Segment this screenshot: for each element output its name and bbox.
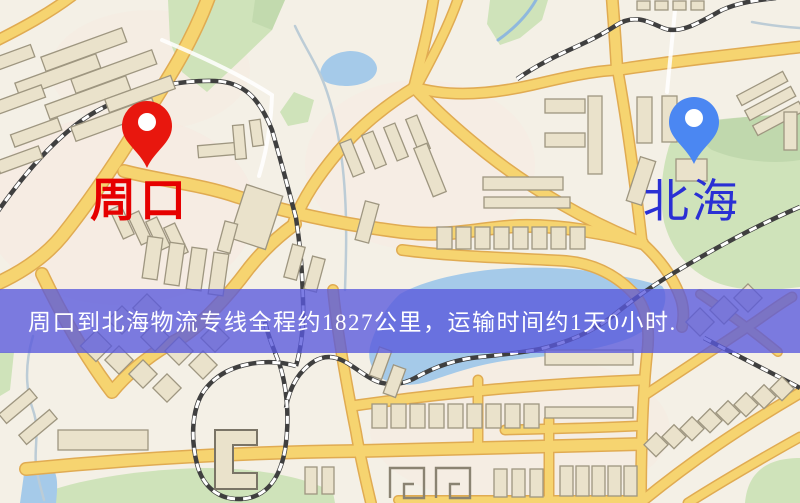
info-banner: 周口到北海物流专线全程约1827公里，运输时间约1天0小时. bbox=[0, 289, 800, 353]
map-screenshot: 周口到北海物流专线全程约1827公里，运输时间约1天0小时. 周口 北海 bbox=[0, 0, 800, 503]
origin-pin-hole bbox=[138, 113, 156, 131]
origin-label: 周口 bbox=[90, 175, 190, 226]
banner-text: 周口到北海物流专线全程约1827公里，运输时间约1天0小时. bbox=[28, 310, 677, 335]
map-canvas: 周口到北海物流专线全程约1827公里，运输时间约1天0小时. 周口 北海 bbox=[0, 0, 800, 503]
destination-label: 北海 bbox=[643, 176, 741, 227]
destination-pin-hole bbox=[685, 109, 703, 127]
